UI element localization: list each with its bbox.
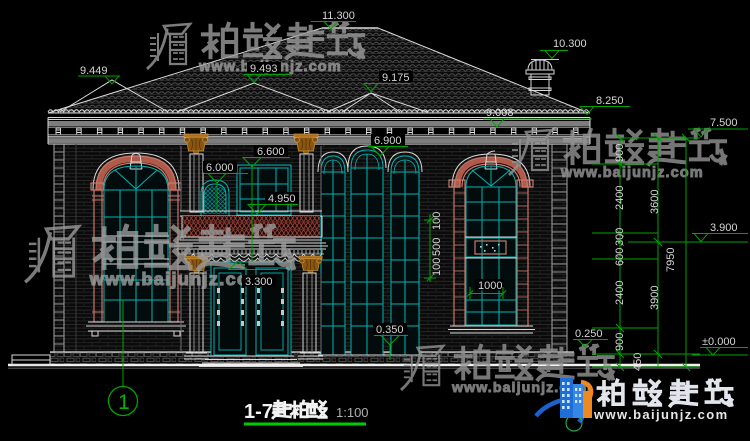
svg-text:3600: 3600 [649, 190, 661, 214]
svg-text:6.900: 6.900 [374, 135, 402, 147]
svg-text:7950: 7950 [665, 248, 677, 272]
svg-text:600: 600 [614, 248, 626, 266]
svg-text:9.175: 9.175 [382, 72, 410, 84]
svg-text:±0.000: ±0.000 [702, 336, 736, 348]
svg-text:11.300: 11.300 [322, 10, 355, 22]
svg-text:900: 900 [614, 333, 626, 351]
svg-text:1:100: 1:100 [336, 405, 369, 420]
svg-text:450: 450 [632, 353, 644, 371]
svg-text:9.493: 9.493 [250, 63, 278, 75]
svg-text:www.baijunjz.com: www.baijunjz.com [593, 407, 729, 422]
svg-text:4.950: 4.950 [268, 193, 296, 205]
svg-text:1000: 1000 [478, 280, 502, 292]
svg-text:3900: 3900 [649, 286, 661, 310]
svg-text:0.250: 0.250 [575, 328, 603, 340]
svg-text:100: 100 [431, 258, 443, 276]
svg-text:6.600: 6.600 [257, 146, 285, 158]
svg-text:2400: 2400 [614, 281, 626, 305]
svg-text:300: 300 [614, 228, 626, 246]
svg-text:900: 900 [614, 144, 626, 162]
svg-text:9.449: 9.449 [80, 65, 108, 77]
svg-text:3.300: 3.300 [245, 276, 273, 288]
svg-text:10.300: 10.300 [553, 38, 587, 50]
svg-text:6.000: 6.000 [206, 162, 234, 174]
svg-text:9.008: 9.008 [486, 107, 514, 119]
svg-text:8.250: 8.250 [596, 95, 624, 107]
svg-text:1: 1 [118, 391, 130, 414]
svg-text:7.500: 7.500 [710, 117, 738, 129]
svg-text:0.350: 0.350 [376, 324, 404, 336]
svg-text:500: 500 [431, 238, 443, 256]
svg-text:1-7: 1-7 [244, 401, 273, 423]
svg-text:100: 100 [431, 212, 443, 230]
svg-text:2400: 2400 [614, 186, 626, 210]
svg-text:3.900: 3.900 [710, 222, 738, 234]
